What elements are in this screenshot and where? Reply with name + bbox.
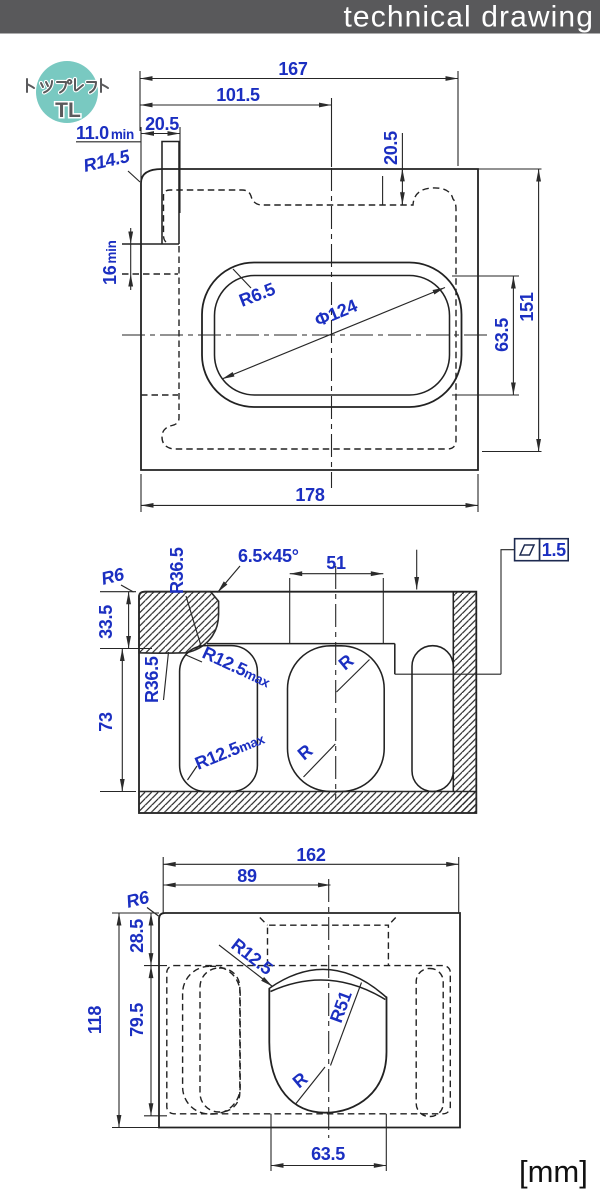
svg-text:technical drawing: technical drawing bbox=[344, 1, 595, 34]
svg-text:1.5: 1.5 bbox=[542, 540, 566, 560]
svg-text:33.5: 33.5 bbox=[96, 605, 116, 639]
svg-text:73: 73 bbox=[96, 712, 116, 732]
svg-text:[mm]: [mm] bbox=[519, 1154, 588, 1189]
svg-text:R36.5: R36.5 bbox=[167, 547, 187, 594]
svg-text:118: 118 bbox=[85, 1006, 105, 1034]
svg-text:63.5: 63.5 bbox=[311, 1144, 345, 1164]
svg-text:20.5: 20.5 bbox=[145, 114, 179, 134]
svg-text:167: 167 bbox=[278, 59, 307, 79]
svg-text:6.5×45°: 6.5×45° bbox=[238, 546, 299, 566]
svg-text:89: 89 bbox=[237, 866, 257, 886]
svg-text:151: 151 bbox=[517, 292, 537, 321]
svg-text:162: 162 bbox=[296, 845, 325, 865]
svg-text:51: 51 bbox=[326, 553, 346, 573]
svg-text:28.5: 28.5 bbox=[127, 919, 147, 953]
svg-text:R36.5: R36.5 bbox=[142, 656, 162, 703]
svg-text:79.5: 79.5 bbox=[127, 1003, 147, 1037]
svg-text:101.5: 101.5 bbox=[216, 85, 260, 105]
svg-text:TL: TL bbox=[55, 99, 81, 122]
svg-text:63.5: 63.5 bbox=[492, 318, 512, 352]
svg-text:178: 178 bbox=[295, 485, 324, 505]
svg-text:20.5: 20.5 bbox=[381, 131, 401, 165]
